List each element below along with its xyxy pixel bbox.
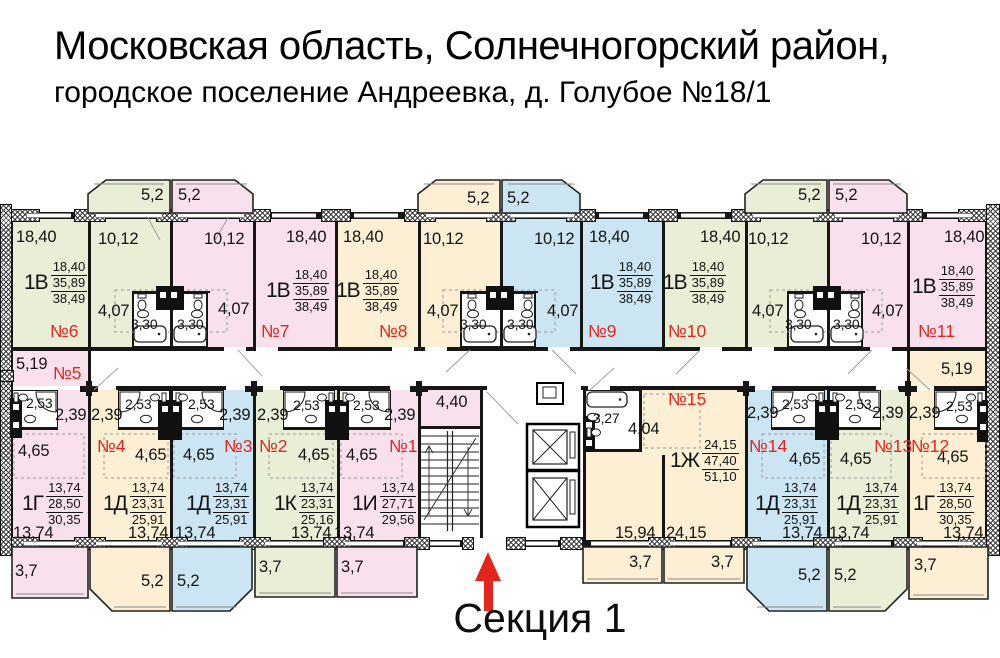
area-label: 3,30	[131, 317, 157, 331]
apartment-number: №2	[259, 438, 288, 456]
apartment-area-values: 13,7423,3125,16	[299, 481, 336, 528]
apartment-type-areas: 1В18,4035,8938,49	[663, 260, 726, 307]
area-value: 24,15	[702, 438, 739, 454]
apartment-type: 1Д	[103, 492, 127, 516]
area-value: 18,40	[939, 264, 976, 280]
area-value: 35,89	[617, 276, 654, 292]
area-label: 3,30	[785, 317, 811, 331]
area-label: 2,53	[26, 396, 52, 410]
area-label: 5,2	[798, 567, 820, 584]
area-value: 23,31	[130, 497, 167, 513]
area-label: 10,12	[98, 231, 138, 248]
area-label: 5,2	[507, 190, 529, 207]
area-label: 2,39	[91, 407, 122, 424]
area-label: 4,07	[218, 301, 249, 318]
area-label: 2,53	[946, 399, 972, 413]
area-label: 5,2	[178, 187, 200, 204]
area-value: 25,91	[213, 513, 250, 528]
area-value: 27,71	[380, 497, 417, 513]
apartment-type-areas: 1Г13,7428,5030,35	[913, 481, 974, 528]
apartment-type: 1Д	[836, 492, 860, 516]
area-value: 38,49	[690, 292, 727, 307]
apartment-number: №10	[668, 323, 706, 341]
area-label: 2,39	[747, 405, 778, 422]
apartment-type-areas: 1Г13,7428,5030,35	[22, 481, 83, 528]
area-label: 18,40	[286, 229, 326, 246]
area-label: 2,53	[125, 397, 151, 411]
area-label: 4,65	[183, 447, 214, 464]
area-label: 3,7	[259, 559, 281, 576]
apartment-type-areas: 1И13,7427,7129,56	[352, 481, 416, 528]
area-value: 13,74	[863, 481, 900, 497]
area-label: 5,19	[16, 356, 47, 373]
apartment-area-values: 18,4035,8938,49	[690, 260, 727, 307]
area-value: 35,89	[51, 276, 88, 292]
apartment-number: №9	[588, 323, 617, 341]
area-value: 25,91	[130, 513, 167, 528]
area-label: 10,12	[204, 231, 244, 248]
area-value: 13,74	[299, 481, 336, 497]
area-label: 2,39	[384, 407, 415, 424]
apartment-type-areas: 1Ж24,1547,4051,10	[670, 438, 739, 485]
apartment-number: №4	[97, 438, 126, 456]
apartment-type-areas: 1В18,4035,8938,49	[24, 260, 87, 307]
area-label: 3,7	[711, 554, 733, 571]
area-label: 10,12	[861, 231, 901, 248]
area-label: 4,65	[789, 451, 820, 468]
area-label: 2,39	[872, 405, 903, 422]
area-label: 2,53	[353, 398, 379, 412]
area-label: 10,12	[423, 231, 463, 248]
area-label: 3,30	[460, 317, 486, 331]
apartment-area-values: 13,7423,3125,91	[130, 481, 167, 528]
area-label: 3,30	[177, 317, 203, 331]
area-value: 18,40	[690, 260, 727, 276]
apartment-type: 1Г	[913, 492, 934, 516]
area-label: 4,07	[427, 303, 458, 320]
area-value: 13,74	[46, 481, 83, 497]
area-label: 2,53	[845, 397, 871, 411]
section-title: Секция 1	[400, 595, 680, 642]
area-value: 13,74	[380, 481, 417, 497]
area-label: 2,53	[188, 397, 214, 411]
area-label: 2,53	[782, 397, 808, 411]
apartment-number: №1	[389, 438, 418, 456]
apartment-area-values: 13,7423,3125,91	[782, 481, 819, 528]
area-label: 4,07	[547, 303, 578, 320]
area-label: 5,2	[141, 187, 163, 204]
title-line2: городское поселение Андреевка, д. Голубо…	[54, 76, 889, 110]
apartment-area-values: 18,4035,8938,49	[939, 264, 976, 311]
area-value: 25,16	[299, 513, 336, 528]
apartment-number: №12	[911, 438, 949, 456]
apartment-type-areas: 1Д13,7423,3125,91	[103, 481, 166, 528]
area-value: 23,31	[213, 497, 250, 513]
apartment-number: №5	[53, 365, 82, 383]
apartment-type: 1Д	[186, 492, 210, 516]
apartment-number: №13	[874, 438, 912, 456]
area-label: 5,19	[941, 361, 972, 378]
apartment-type-areas: 1Д13,7423,3125,91	[755, 481, 818, 528]
area-label: 5,2	[798, 187, 820, 204]
area-label: 18,40	[700, 229, 740, 246]
area-value: 13,74	[213, 481, 250, 497]
apartment-area-values: 18,4035,8938,49	[293, 268, 330, 315]
apartment-number: №7	[261, 323, 290, 341]
area-label: 4,07	[872, 303, 903, 320]
area-value: 18,40	[363, 268, 400, 284]
area-label: 2,39	[257, 407, 288, 424]
area-label: 18,40	[944, 229, 984, 246]
area-value: 28,50	[46, 497, 83, 513]
area-value: 38,49	[939, 296, 976, 311]
apartment-type: 1К	[274, 492, 296, 516]
apartment-area-values: 18,4035,8938,49	[363, 268, 400, 315]
apartment-type-areas: 1Д13,7423,3125,91	[836, 481, 899, 528]
apartment-type: 1В	[336, 279, 360, 303]
area-value: 13,74	[937, 481, 974, 497]
area-label: 18,40	[343, 229, 383, 246]
area-label: 3,30	[507, 317, 533, 331]
apartment-type: 1В	[912, 275, 936, 299]
area-value: 18,40	[293, 268, 330, 284]
area-value: 47,40	[702, 454, 739, 470]
apartment-type: 1В	[663, 271, 687, 295]
apartment-area-values: 18,4035,8938,49	[51, 260, 88, 307]
area-label: 5,2	[834, 567, 856, 584]
area-label: 2,53	[293, 398, 319, 412]
area-label: 4,65	[298, 447, 329, 464]
apartment-type: 1В	[266, 279, 290, 303]
area-value: 30,35	[46, 513, 83, 528]
area-value: 35,89	[293, 284, 330, 300]
area-label: 4,65	[840, 451, 871, 468]
area-label: 10,12	[534, 231, 574, 248]
area-label: 4,65	[346, 447, 377, 464]
area-label: 18,40	[589, 229, 629, 246]
apartment-type: 1Д	[755, 492, 779, 516]
apartment-area-values: 18,4035,8938,49	[617, 260, 654, 307]
area-label: 2,39	[219, 407, 250, 424]
area-label: 18,40	[16, 229, 56, 246]
area-value: 23,31	[782, 497, 819, 513]
area-label: 15,94	[615, 525, 655, 542]
apartment-number: №6	[50, 323, 79, 341]
area-label: 2,39	[55, 407, 86, 424]
title-line1: Московская область, Солнечногорский райо…	[54, 24, 889, 69]
area-label: 3,7	[914, 557, 936, 574]
apartment-type-areas: 1В18,4035,8938,49	[912, 264, 975, 311]
apartment-number: №8	[379, 323, 408, 341]
area-label: 2,39	[909, 405, 940, 422]
area-label: 3,7	[15, 563, 37, 580]
area-value: 38,49	[363, 300, 400, 315]
area-value: 18,40	[617, 260, 654, 276]
area-value: 18,40	[51, 260, 88, 276]
apartment-type: 1В	[24, 271, 48, 295]
area-value: 28,50	[937, 497, 974, 513]
apartment-type-areas: 1В18,4035,8938,49	[266, 268, 329, 315]
area-label: 4,07	[98, 303, 129, 320]
apartment-type: 1Г	[22, 492, 43, 516]
area-label: 3,7	[341, 559, 363, 576]
apartment-type: 1И	[352, 492, 377, 516]
area-label: 3,30	[833, 317, 859, 331]
area-value: 25,91	[782, 513, 819, 528]
area-value: 35,89	[690, 276, 727, 292]
area-value: 23,31	[299, 497, 336, 513]
area-label: 4,07	[752, 303, 783, 320]
area-label: 4,65	[135, 447, 166, 464]
area-label: 5,2	[835, 187, 857, 204]
apartment-number: №11	[918, 323, 955, 341]
apartment-number: №15	[668, 391, 706, 409]
area-value: 30,35	[937, 513, 974, 528]
apartment-area-values: 13,7428,5030,35	[46, 481, 83, 528]
area-value: 38,49	[293, 300, 330, 315]
area-value: 23,31	[863, 497, 900, 513]
apartment-type-areas: 1К13,7423,3125,16	[274, 481, 335, 528]
area-label: 3,27	[593, 411, 619, 425]
area-value: 51,10	[702, 470, 739, 485]
apartment-type-areas: 1Д13,7423,3125,91	[186, 481, 249, 528]
area-value: 13,74	[130, 481, 167, 497]
area-value: 38,49	[617, 292, 654, 307]
area-label: 4,40	[436, 394, 467, 411]
area-label: 3,7	[629, 554, 651, 571]
apartment-area-values: 24,1547,4051,10	[702, 438, 739, 485]
apartment-area-values: 13,7427,7129,56	[380, 481, 417, 528]
area-label: 10,12	[748, 231, 788, 248]
apartment-number: №3	[224, 438, 253, 456]
apartment-type: 1Ж	[670, 449, 699, 473]
area-label: 4,04	[628, 421, 659, 438]
apartment-type-areas: 1В18,4035,8938,49	[590, 260, 653, 307]
area-value: 35,89	[363, 284, 400, 300]
area-label: 5,2	[177, 573, 199, 590]
apartment-area-values: 13,7423,3125,91	[863, 481, 900, 528]
apartment-number: №14	[749, 438, 787, 456]
apartment-type-areas: 1В18,4035,8938,49	[336, 268, 399, 315]
area-label: 5,2	[141, 573, 163, 590]
plan-title: Московская область, Солнечногорский райо…	[54, 24, 889, 110]
area-value: 25,91	[863, 513, 900, 528]
area-label: 5,2	[467, 190, 489, 207]
area-value: 29,56	[380, 513, 417, 528]
area-label: 4,65	[18, 443, 49, 460]
area-label: 24,15	[666, 525, 706, 542]
apartment-area-values: 13,7428,5030,35	[937, 481, 974, 528]
area-value: 35,89	[939, 280, 976, 296]
apartment-area-values: 13,7423,3125,91	[213, 481, 250, 528]
apartment-type: 1В	[590, 271, 614, 295]
area-value: 13,74	[782, 481, 819, 497]
area-value: 38,49	[51, 292, 88, 307]
